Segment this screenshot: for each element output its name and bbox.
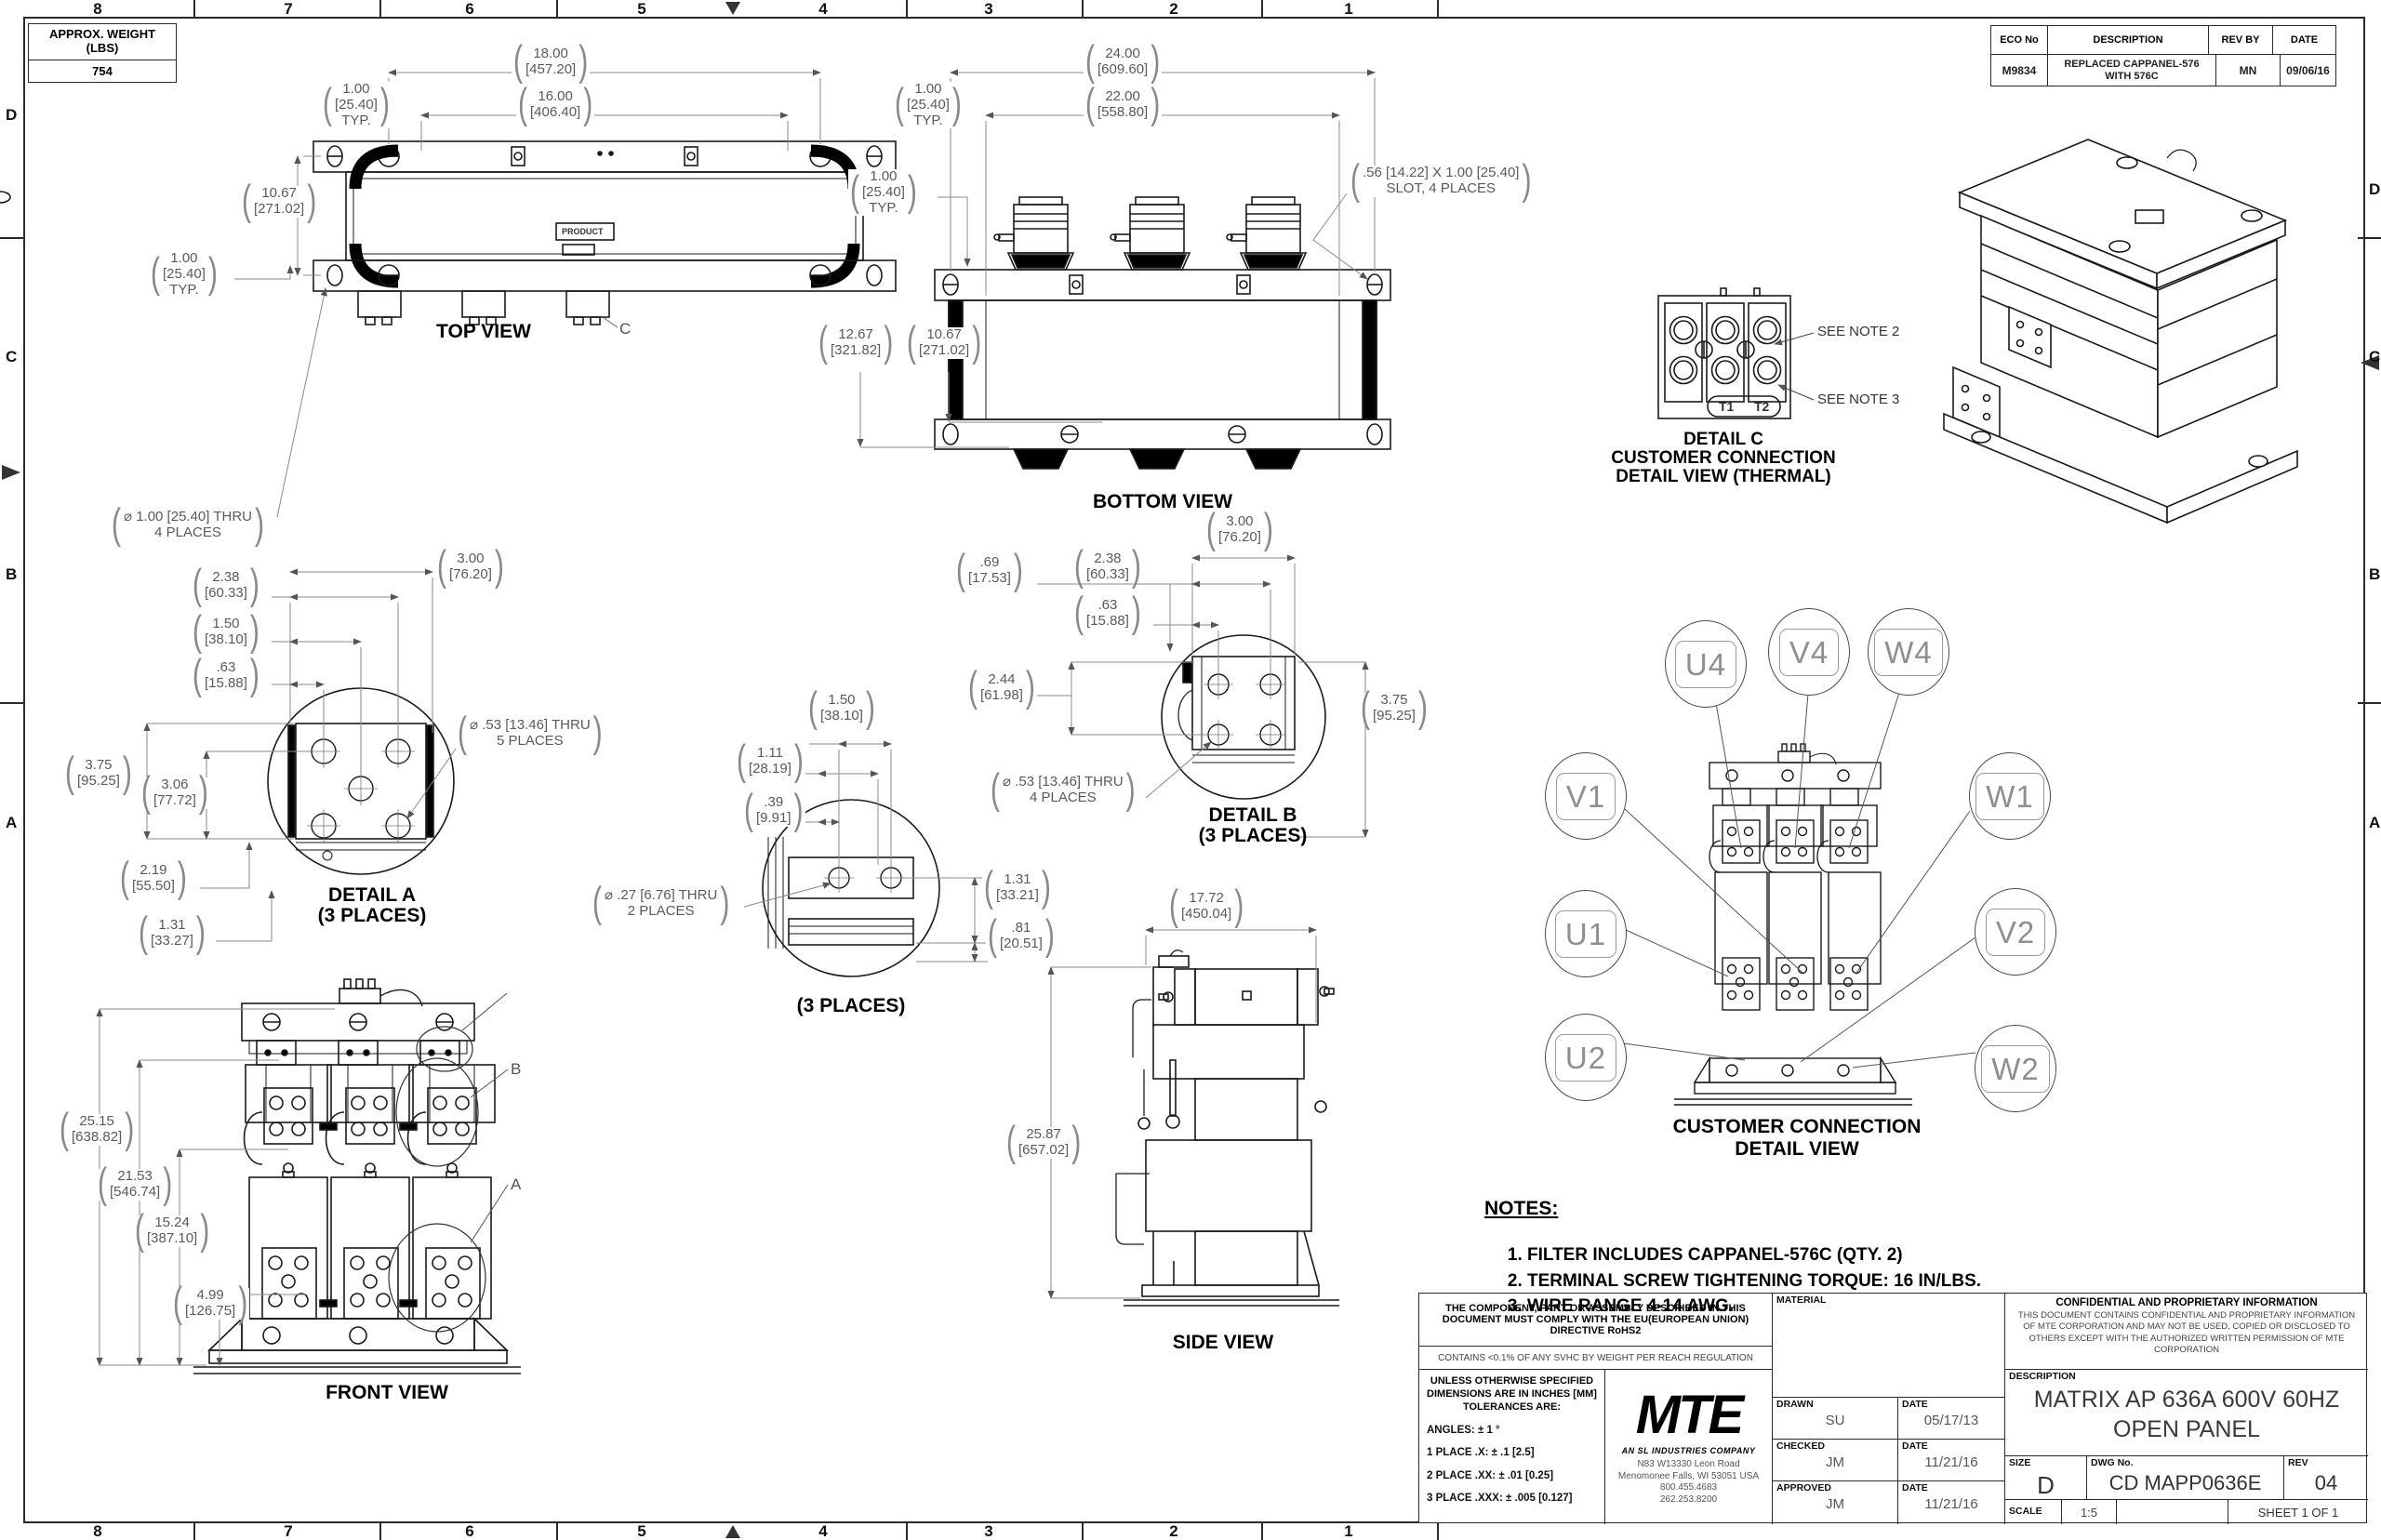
product-label: PRODUCT <box>562 227 604 236</box>
size-value: D <box>2005 1471 2086 1500</box>
rev-cell: REV 04 <box>2284 1456 2368 1500</box>
dim-detail-a-63: .63[15.88] <box>191 660 261 692</box>
confidential-body: THIS DOCUMENT CONTAINS CONFIDENTIAL AND … <box>2015 1310 2359 1356</box>
checked-date-cell: DATE 11/21/16 <box>1898 1440 2005 1481</box>
approved-value: JM <box>1773 1496 1897 1512</box>
tolerance-block: UNLESS OTHERWISE SPECIFIED DIMENSIONS AR… <box>1419 1370 1605 1524</box>
tol-angles: ANGLES: ± 1 ° <box>1427 1419 1597 1441</box>
zone-col: 1 <box>1344 1522 1352 1540</box>
cc-view-title: CUSTOMER CONNECTION <box>1673 1116 1922 1138</box>
dim-front-499: 4.99[126.75] <box>171 1288 249 1320</box>
dim-bottomview-1067: 10.67[271.02] <box>905 327 983 359</box>
dim-mid-131: 1.31[33.21] <box>982 872 1053 904</box>
detail-a-title: DETAIL A <box>328 884 416 907</box>
zone-col: 3 <box>984 1522 992 1540</box>
zone-row: D <box>2369 180 2380 199</box>
scale-label: SCALE <box>2005 1500 2062 1524</box>
size-cell: SIZE D <box>2005 1456 2087 1500</box>
drawn-cell: DRAWN SU <box>1773 1398 1898 1440</box>
dim-topview-1067: 10.67[271.02] <box>240 186 318 218</box>
notes-title: NOTES: <box>1484 1198 1558 1220</box>
dim-detail-a-131: 1.31[33.27] <box>137 918 207 949</box>
cc-view-drawing <box>1624 690 1975 1105</box>
zone-row: D <box>6 106 17 125</box>
note-item: WIRE RANGE 4-14 AWG. <box>1527 1294 1981 1320</box>
side-view-drawing <box>1116 950 1339 1306</box>
checked-value: JM <box>1773 1454 1897 1470</box>
top-view-title: TOP VIEW <box>436 321 531 343</box>
see-note-2: SEE NOTE 2 <box>1817 324 1899 339</box>
side-view-title: SIDE VIEW <box>1173 1332 1274 1354</box>
balloon-u1: U1 <box>1545 890 1627 977</box>
section-callout-c: C <box>619 320 631 339</box>
top-view-drawing <box>313 141 896 327</box>
approved-date-cell: DATE 11/21/16 <box>1898 1481 2005 1524</box>
dim-side-1772: 17.72[450.04] <box>1167 891 1245 923</box>
zone-col: 6 <box>465 0 473 19</box>
zone-col: 2 <box>1169 1522 1177 1540</box>
eco-number: M9834 <box>1991 55 2048 86</box>
dim-topview-1-typ: 1.00[25.40]TYP. <box>321 82 392 128</box>
dim-mid-39: .39[9.91] <box>742 795 805 827</box>
dwg-number: CD MAPP0636E <box>2087 1471 2283 1495</box>
confidential-block: CONFIDENTIAL AND PROPRIETARY INFORMATION… <box>2005 1294 2368 1370</box>
scale-value: 1:5 <box>2062 1500 2117 1524</box>
dim-detail-b-244: 2.44[61.98] <box>966 672 1037 704</box>
balloon-u4: U4 <box>1665 620 1747 708</box>
dim-detail-a-300: 3.00[76.20] <box>435 551 506 583</box>
bottom-view-drawing <box>935 197 1390 469</box>
checked-date: 11/21/16 <box>1898 1454 2004 1470</box>
callout-topview-hole: ⌀ 1.00 [25.40] THRU4 PLACES <box>110 510 266 541</box>
drawing-description: MATRIX AP 636A 600V 60HZ OPEN PANEL <box>2005 1385 2368 1445</box>
dim-detail-a-375: 3.75[95.25] <box>63 758 134 790</box>
dim-mid-111: 1.11[28.19] <box>735 746 805 777</box>
balloon-w2: W2 <box>1975 1025 2056 1112</box>
side-view-dim-lines <box>1051 930 1316 1298</box>
zone-row: A <box>2369 814 2380 832</box>
tol-2place: 2 PLACE .XX: ± .01 [0.25] <box>1427 1465 1597 1487</box>
checked-cell: CHECKED JM <box>1773 1440 1898 1481</box>
dim-side-2587: 25.87[657.02] <box>1004 1127 1083 1159</box>
callout-bottomview-slot: .56 [14.22] X 1.00 [25.40]SLOT, 4 PLACES <box>1349 166 1533 197</box>
scale-row: SCALE 1:5 SHEET 1 OF 1 <box>2005 1500 2368 1524</box>
zone-row: B <box>2369 565 2380 584</box>
weight-table: APPROX. WEIGHT (LBS) 754 <box>28 23 177 83</box>
dim-front-2515: 25.15[638.82] <box>58 1114 136 1146</box>
dim-topview-16: 16.00[406.40] <box>516 89 594 121</box>
terminal-t1: T1 <box>1719 399 1734 414</box>
detail-callout-b: B <box>511 1060 521 1079</box>
dim-bottomview-22: 22.00[558.80] <box>1084 89 1162 121</box>
balloon-u2: U2 <box>1545 1014 1627 1101</box>
detail-b-drawing <box>1162 635 1325 799</box>
zone-col: 8 <box>93 1522 101 1540</box>
approved-date: 11/21/16 <box>1898 1496 2004 1512</box>
dim-topview-18: 18.00[457.20] <box>512 46 590 78</box>
balloon-v2: V2 <box>1975 888 2056 976</box>
dim-bottomview-1-typ: 1.00[25.40]TYP. <box>893 82 964 128</box>
dim-front-1524: 15.24[387.10] <box>133 1215 211 1247</box>
callout-mid-hole: ⌀ .27 [6.76] THRU2 PLACES <box>591 888 731 920</box>
balloon-w4: W4 <box>1868 608 1949 696</box>
zone-col: 5 <box>637 1522 645 1540</box>
zone-col: 1 <box>1344 0 1352 19</box>
eco-table: ECO No DESCRIPTION REV BY DATE M9834 REP… <box>1990 25 2336 86</box>
bottom-view-title: BOTTOM VIEW <box>1093 491 1232 513</box>
drawn-value: SU <box>1773 1413 1897 1428</box>
eco-date: 09/06/16 <box>2281 55 2335 86</box>
callout-detail-a-hole: ⌀ .53 [13.46] THRU5 PLACES <box>456 718 605 750</box>
balloon-v1: V1 <box>1545 752 1627 840</box>
approved-cell: APPROVED JM <box>1773 1481 1898 1524</box>
mte-logo: MTE <box>1636 1388 1741 1442</box>
weight-value: 754 <box>29 60 176 82</box>
tol-1place: 1 PLACE .X: ± .1 [2.5] <box>1427 1441 1597 1464</box>
mte-logo-block: MTE AN SL INDUSTRIES COMPANY N83 W13330 … <box>1605 1370 1773 1524</box>
drawn-date: 05/17/13 <box>1898 1413 2004 1428</box>
dim-bottomview-1267: 12.67[321.82] <box>817 327 895 359</box>
dim-detail-b-300: 3.00[76.20] <box>1204 514 1275 546</box>
zone-col: 7 <box>284 0 292 19</box>
dim-detail-a-219: 2.19[55.50] <box>118 863 189 895</box>
balloon-w1: W1 <box>1969 752 2051 840</box>
top-view-dim-lines <box>234 73 820 517</box>
drawn-date-cell: DATE 05/17/13 <box>1898 1398 2005 1440</box>
description-block: DESCRIPTION MATRIX AP 636A 600V 60HZ OPE… <box>2005 1370 2368 1456</box>
dim-bottomview-1-typ-left: 1.00[25.40]TYP. <box>848 169 919 216</box>
zone-col: 3 <box>984 0 992 19</box>
zone-row: C <box>6 348 17 366</box>
dim-detail-a-150: 1.50[38.10] <box>191 617 261 648</box>
zone-col: 4 <box>818 1522 827 1540</box>
zone-row: B <box>6 565 17 584</box>
callout-detail-b-hole: ⌀ .53 [13.46] THRU4 PLACES <box>989 775 1137 806</box>
terminal-t2: T2 <box>1754 399 1769 414</box>
zone-col: 2 <box>1169 0 1177 19</box>
dim-topview-1-typ-left: 1.00[25.40]TYP. <box>149 251 219 298</box>
sheet-value: SHEET 1 OF 1 <box>2228 1500 2368 1524</box>
zone-row: C <box>2369 348 2380 366</box>
balloon-v4: V4 <box>1768 608 1850 696</box>
dim-detail-a-306: 3.06[77.72] <box>140 777 210 809</box>
drawing-sheet: 8 7 6 5 4 3 2 1 8 7 6 5 4 3 2 1 D C B A … <box>0 0 2381 1540</box>
eco-header: ECO No <box>1991 26 2048 54</box>
confidential-title: CONFIDENTIAL AND PROPRIETARY INFORMATION <box>2015 1297 2359 1308</box>
mid-detail-title: (3 PLACES) <box>797 995 906 1017</box>
zone-row: A <box>6 814 17 832</box>
weight-title: APPROX. WEIGHT <box>49 27 155 41</box>
dim-mid-150: 1.50[38.10] <box>806 693 877 724</box>
detail-c-drawing <box>1658 288 1814 418</box>
zone-col: 8 <box>93 0 101 19</box>
title-block: THE COMPONENT, PART OR ASSEMBLY DESCRIBE… <box>1418 1293 2367 1523</box>
note-item: TERMINAL SCREW TIGHTENING TORQUE: 16 IN/… <box>1527 1268 1981 1294</box>
front-view-title: FRONT VIEW <box>326 1382 448 1404</box>
dim-detail-a-238: 2.38[60.33] <box>191 570 261 602</box>
dim-detail-b-69: .69[17.53] <box>954 555 1025 587</box>
detail-callout-a: A <box>511 1175 521 1194</box>
detail-b-title: DETAIL B <box>1209 804 1297 827</box>
reach-statement: CONTAINS <0.1% OF ANY SVHC BY WEIGHT PER… <box>1419 1347 1773 1370</box>
dim-detail-b-63: .63[15.88] <box>1072 598 1143 630</box>
dwg-cell: DWG No. CD MAPP0636E <box>2087 1456 2284 1500</box>
zone-col: 6 <box>465 1522 473 1540</box>
dim-bottomview-24: 24.00[609.60] <box>1084 46 1162 78</box>
tol-3place: 3 PLACE .XXX: ± .005 [0.127] <box>1427 1487 1597 1509</box>
dim-detail-b-238: 2.38[60.33] <box>1072 551 1143 583</box>
see-note-3: SEE NOTE 3 <box>1817 392 1899 407</box>
rev-value: 04 <box>2284 1471 2368 1495</box>
zone-col: 4 <box>818 0 827 19</box>
eco-revby: MN <box>2216 55 2281 86</box>
notes-list: FILTER INCLUDES CAPPANEL-576C (QTY. 2) T… <box>1484 1242 1981 1320</box>
detail-c-title: DETAIL C <box>1683 430 1763 450</box>
zone-col: 5 <box>637 0 645 19</box>
zone-col: 7 <box>284 1522 292 1540</box>
mte-logo-subtitle: AN SL INDUSTRIES COMPANY <box>1622 1446 1756 1455</box>
dim-front-2153: 21.53[546.74] <box>96 1169 174 1201</box>
eco-description: REPLACED CAPPANEL-576 WITH 576C <box>2048 55 2216 86</box>
mte-address: N83 W13330 Leon Road Menomonee Falls, WI… <box>1618 1459 1759 1506</box>
dim-mid-81: .81[20.51] <box>986 921 1057 952</box>
note-item: FILTER INCLUDES CAPPANEL-576C (QTY. 2) <box>1527 1242 1981 1268</box>
dim-detail-b-375: 3.75[95.25] <box>1359 693 1430 724</box>
